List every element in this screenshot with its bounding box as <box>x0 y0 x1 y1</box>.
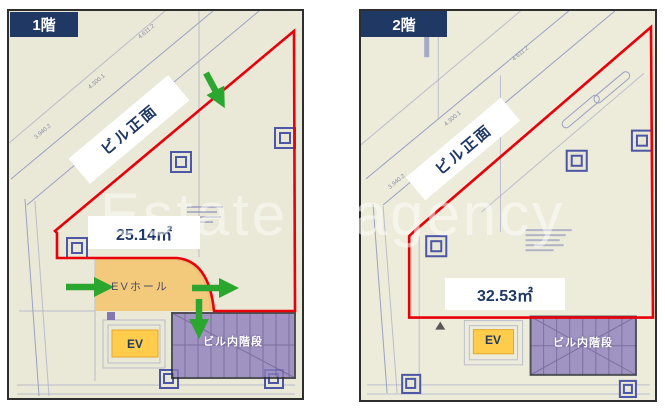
floor2-stairs-label: ビル内階段 <box>528 334 638 350</box>
floor1-ev-label: EV <box>112 330 158 357</box>
floor2-tag: 2階 <box>361 11 447 37</box>
floor2-plan-panel: 2階 ビル正面 32.53㎡ EV ビル内階段 4.611.2 4.300.1 … <box>359 9 657 402</box>
floor1-stairs-label: ビル内階段 <box>177 333 289 349</box>
floor2-area-label: 32.53㎡ <box>445 278 565 310</box>
floor1-area-label: 25.14㎡ <box>88 216 200 249</box>
floorplan-comparison: 1階 ビル正面 25.14㎡ EVホール EV ビル内階段 4.611.2 4.… <box>0 0 665 409</box>
floor2-ev-label: EV <box>473 328 513 352</box>
floor1-ev-hall-label: EVホール <box>100 278 180 294</box>
floor1-plan-panel: 1階 ビル正面 25.14㎡ EVホール EV ビル内階段 4.611.2 4.… <box>7 9 304 400</box>
plan-annotation-block <box>526 229 572 251</box>
floor1-tag: 1階 <box>10 12 78 37</box>
